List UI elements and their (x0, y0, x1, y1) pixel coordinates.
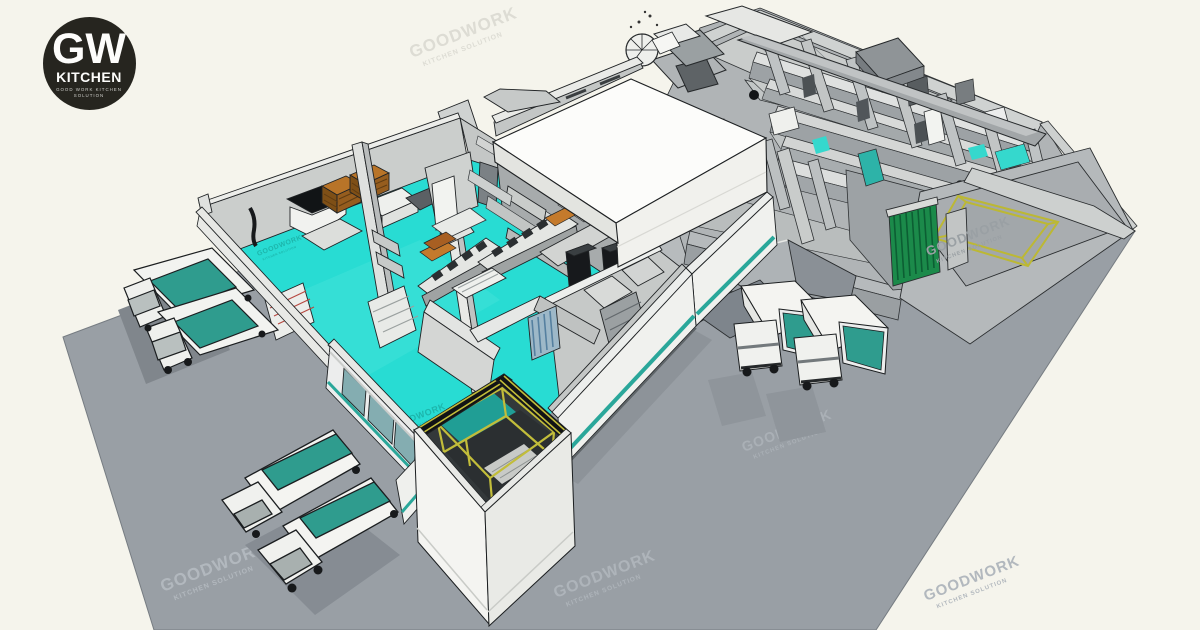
svg-text:GOOD WORK KITCHEN: GOOD WORK KITCHEN (56, 87, 122, 92)
svg-text:KITCHEN: KITCHEN (56, 69, 122, 85)
svg-text:SOLUTION: SOLUTION (74, 93, 104, 98)
svg-text:GW: GW (52, 25, 126, 73)
